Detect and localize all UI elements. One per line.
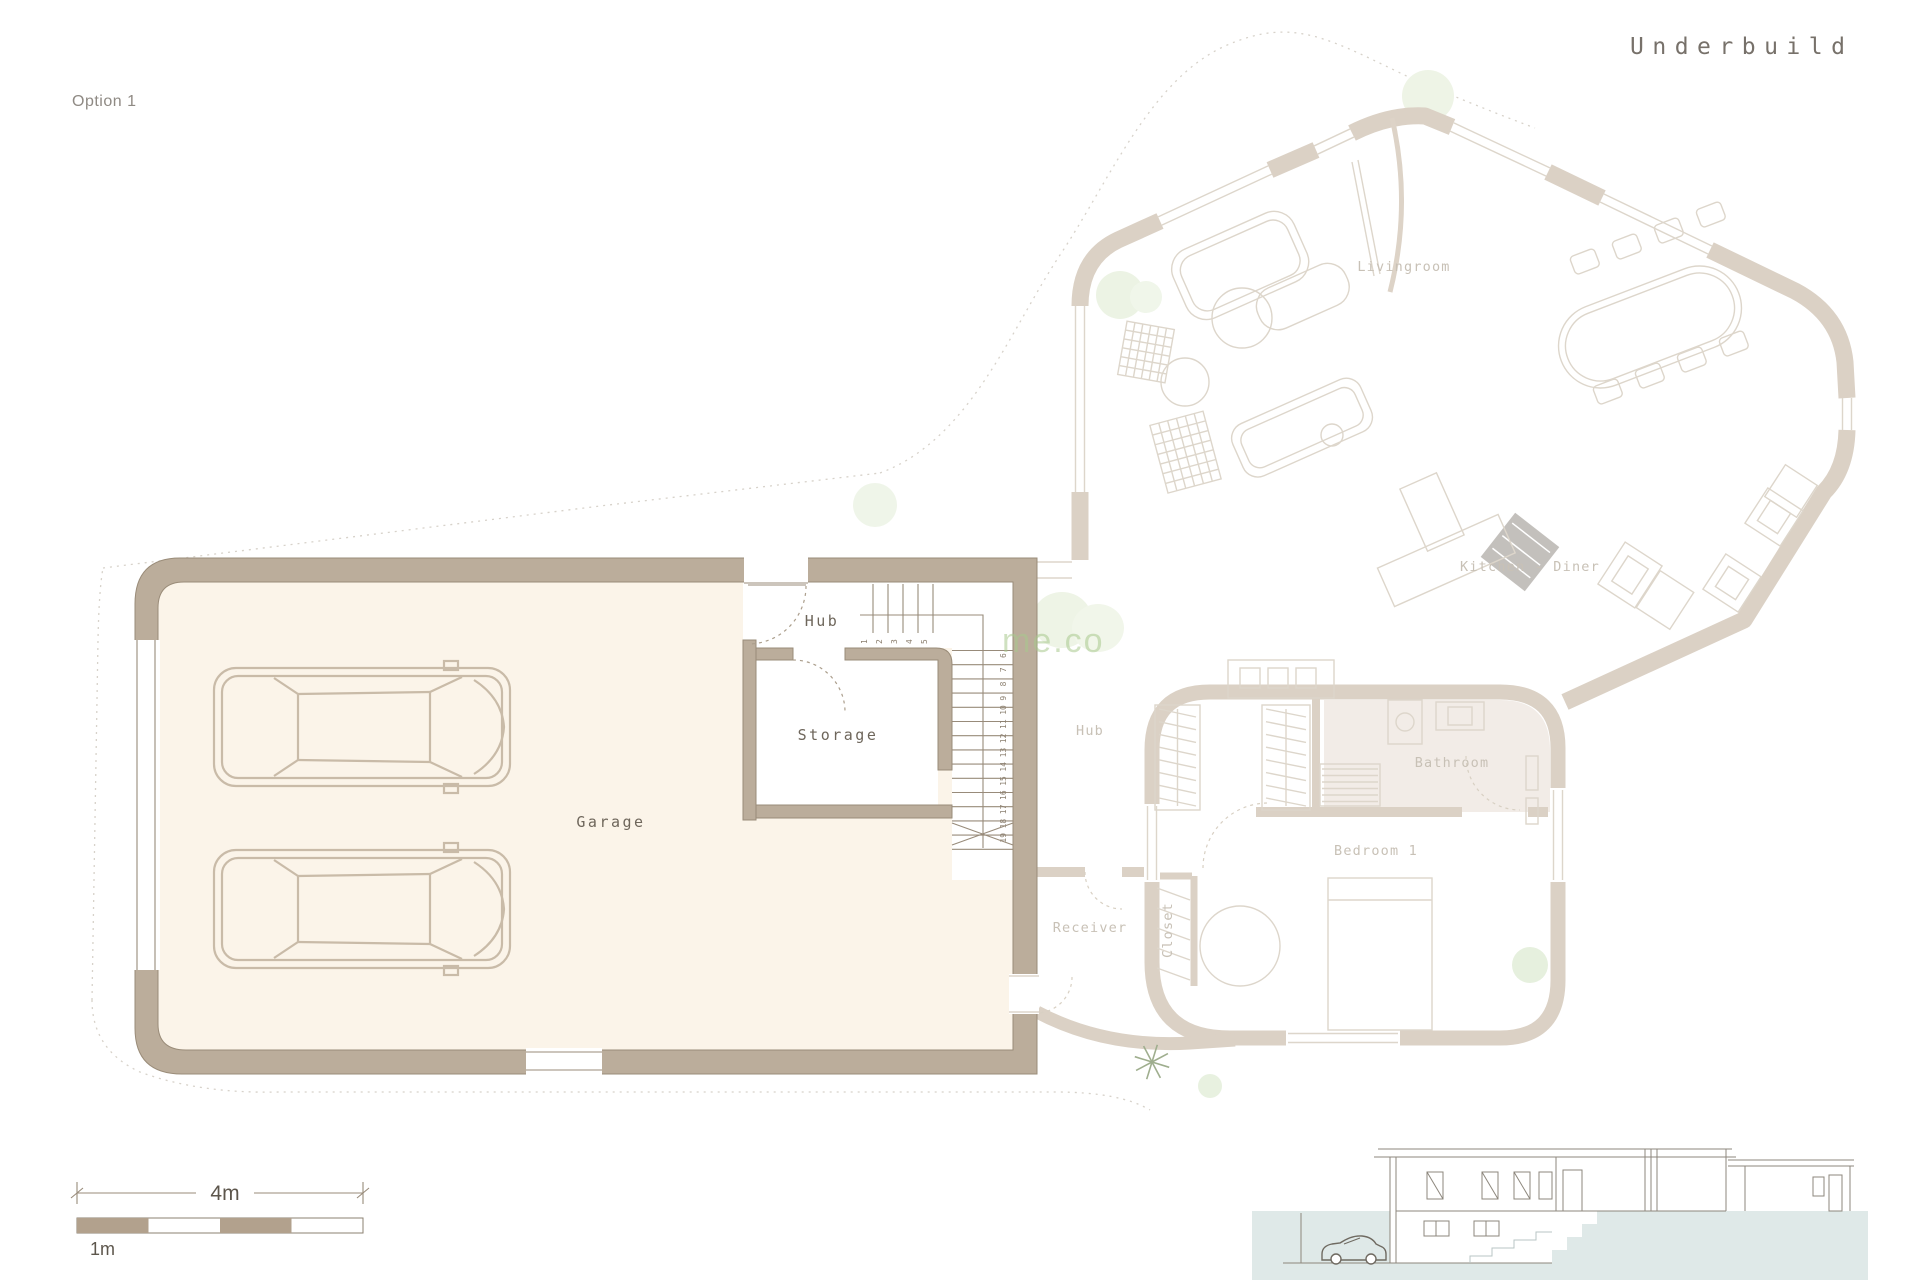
stair-number: 11 (999, 719, 1008, 729)
room-label-kitchen-diner: Kitchen - Diner (1460, 559, 1600, 575)
plant-icon (853, 483, 897, 527)
dining-chair (1611, 233, 1642, 260)
room-label-closet: Closet (1160, 902, 1176, 958)
stair-number: 3 (890, 639, 899, 644)
stair-number: 8 (999, 681, 1008, 686)
stair-number: 1 (860, 639, 869, 644)
stair-number: 5 (920, 639, 929, 644)
window-line (1454, 123, 1550, 168)
kitchen-island-hob (1481, 513, 1560, 592)
sheet-title: Underbuild (1630, 34, 1853, 60)
dining-set (1546, 201, 1753, 405)
terrain-section (1252, 1211, 1868, 1280)
stair-number: 14 (999, 762, 1008, 772)
bedroom-chair (1200, 906, 1280, 986)
bed (1328, 878, 1432, 1030)
scale-unit-label: 1m (90, 1239, 115, 1259)
room-label-livingroom: Livingroom (1357, 259, 1450, 275)
room-label-garage: Garage (576, 813, 645, 831)
option-label: Option 1 (72, 93, 136, 110)
dining-chair (1695, 201, 1726, 228)
scale-total-label: 4m (210, 1182, 239, 1205)
floorplan-sheet: Livingroom Kitchen - Diner Hub Bathroom … (0, 0, 1920, 1280)
window-gap (1286, 1030, 1400, 1046)
dining-chair (1569, 248, 1600, 275)
window-icon (1813, 1177, 1824, 1196)
room-label-upper-hub: Hub (1076, 723, 1104, 739)
section-elevation (1252, 1149, 1868, 1280)
rug (1150, 411, 1221, 493)
kitchen-fixtures (1228, 465, 1817, 698)
upper-walls (1037, 116, 1847, 1044)
stair-number: 4 (905, 639, 914, 644)
stair-number: 9 (999, 696, 1008, 701)
window-line (1318, 137, 1354, 154)
stair-number: 7 (999, 667, 1008, 672)
door-icon (1563, 1170, 1582, 1211)
room-label-hub: Hub (805, 612, 840, 630)
room-label-bedroom: Bedroom 1 (1334, 843, 1418, 859)
plant-icon (1512, 947, 1548, 983)
window-icon (1539, 1172, 1552, 1199)
plant-icon (1130, 281, 1162, 313)
scale-bar: 4m 1m (71, 1182, 369, 1259)
scale-segment (77, 1218, 149, 1233)
floorplan-drawing: Livingroom Kitchen - Diner Hub Bathroom … (0, 0, 1920, 1280)
livingroom-furniture (1118, 118, 1402, 493)
stair-number: 2 (875, 639, 884, 644)
garage-plan: 12345 678910111213141516171819 Hub Stora… (133, 556, 1072, 1076)
stair-number: 10 (999, 705, 1008, 715)
stair-number: 13 (999, 748, 1008, 758)
window-line (1314, 129, 1350, 146)
watermark: me.co (1002, 622, 1105, 660)
room-label-bathroom: Bathroom (1415, 755, 1490, 771)
window-gap (1550, 788, 1566, 882)
door-icon (1829, 1175, 1842, 1211)
plant-icon (1198, 1074, 1222, 1098)
stair-number: 17 (999, 804, 1008, 814)
window-line (1450, 131, 1546, 176)
window-line (1158, 166, 1268, 217)
stair-number: 15 (999, 776, 1008, 786)
stair-number: 12 (999, 733, 1008, 743)
room-label-receiver: Receiver (1053, 920, 1128, 936)
rug (1118, 321, 1175, 383)
dining-chair (1592, 378, 1623, 405)
wardrobe-hatch (1266, 709, 1306, 806)
window-gap (1144, 804, 1160, 882)
scale-segment (220, 1218, 292, 1233)
stair-number: 16 (999, 790, 1008, 800)
wardrobe-hatch (1159, 709, 1196, 806)
room-label-storage: Storage (798, 726, 879, 744)
